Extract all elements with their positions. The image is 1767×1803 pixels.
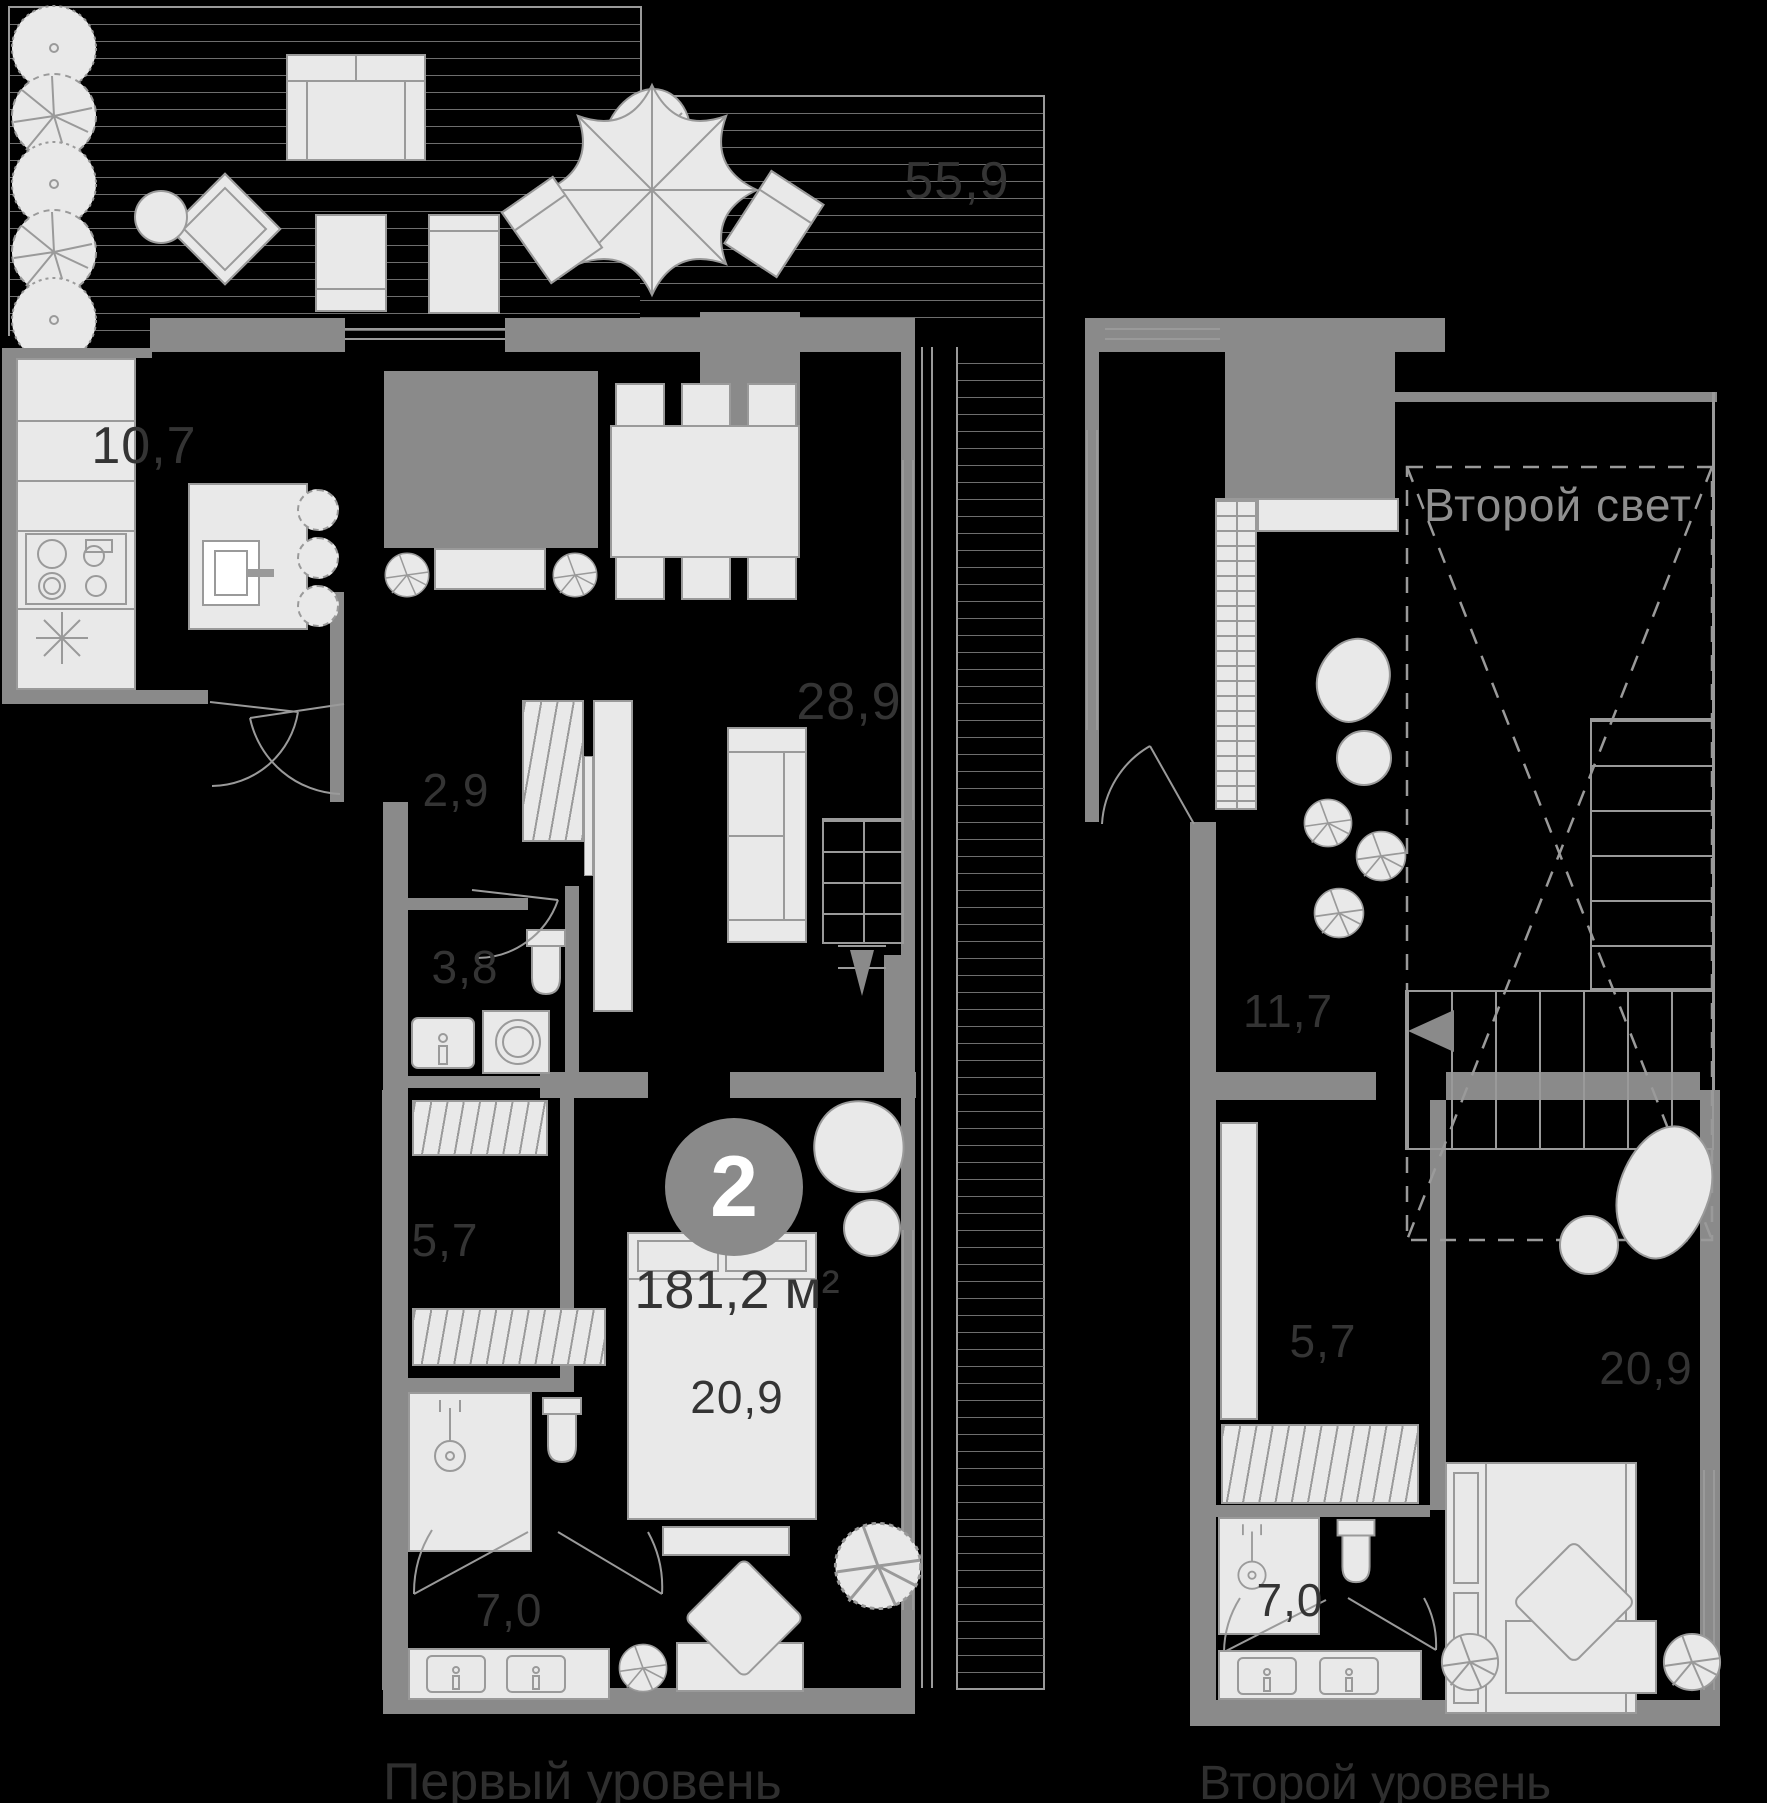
tv-screen [584, 756, 593, 876]
toilet-icon [1334, 1518, 1378, 1586]
dining-chair [615, 383, 665, 427]
wall [382, 1090, 408, 1690]
wall [150, 318, 345, 352]
outdoor-sofa [286, 54, 426, 161]
wardrobe-cabinet [1220, 1122, 1258, 1420]
unit-badge: 2 [665, 1118, 803, 1256]
area-bedroom: 20,9 [690, 1370, 784, 1424]
shower-head-icon [428, 1398, 472, 1474]
area-bedroom-2: 20,9 [1599, 1341, 1693, 1395]
pouf [843, 1199, 901, 1257]
pouf [1336, 730, 1392, 786]
sink-icon [425, 1654, 487, 1694]
door-arc [1340, 1588, 1440, 1654]
window [345, 328, 505, 340]
wall [540, 1072, 648, 1098]
area-bathroom: 7,0 [476, 1583, 543, 1637]
wall-column [1225, 352, 1395, 498]
area-hall-2: 11,7 [1243, 984, 1333, 1038]
dining-chair [615, 556, 665, 600]
dining-chair [681, 383, 731, 427]
beanbag-chair [1303, 626, 1404, 734]
wardrobe-rail [412, 1308, 606, 1366]
area-wardrobe: 5,7 [412, 1213, 479, 1267]
window [902, 460, 914, 820]
wall [2, 348, 16, 700]
balcony-border [956, 1688, 1045, 1690]
dining-chair [747, 556, 797, 600]
window-wall [921, 347, 933, 1688]
pouf-icon [1312, 886, 1366, 940]
pouf-icon [1354, 829, 1408, 883]
bar-table [434, 548, 546, 590]
toilet-icon [540, 1396, 584, 1466]
balcony-hatch [958, 347, 1044, 1688]
wall [1216, 1505, 1430, 1517]
sink-icon [505, 1654, 567, 1694]
sink-icon [1236, 1656, 1298, 1696]
stool-icon [383, 551, 431, 599]
wall [2, 348, 152, 358]
bar-stool [297, 489, 339, 531]
floor-plan: 2 181,2 м² 55,9 10,7 28,9 2,9 3,8 5,7 20… [0, 0, 1767, 1803]
level1-caption: Первый уровень [383, 1752, 782, 1803]
sofa [727, 727, 807, 943]
washing-machine-drum [492, 1016, 544, 1068]
outdoor-side-table [134, 190, 188, 244]
staircase [822, 818, 904, 944]
door-arc [548, 1520, 666, 1598]
kitchen-island [188, 483, 308, 630]
terrace-border [8, 6, 642, 8]
area-terrace: 55,9 [904, 151, 1009, 211]
area-kitchen: 10,7 [91, 416, 196, 476]
area-living: 28,9 [796, 672, 901, 732]
window [1086, 430, 1098, 730]
wall [383, 802, 408, 1090]
staircase-upper [1590, 718, 1714, 990]
wall [1326, 1072, 1376, 1100]
pouf-icon [1302, 797, 1354, 849]
total-area: 181,2 м² [634, 1259, 839, 1321]
stairs-down-arrow [836, 944, 888, 1002]
wall-column [384, 371, 598, 548]
wardrobe-rail [1221, 1424, 1419, 1504]
dining-chair [747, 383, 797, 427]
bar-stool [297, 585, 339, 627]
area-wardrobe-2: 5,7 [1290, 1314, 1357, 1368]
wall [408, 1378, 574, 1392]
pouf-icon [831, 1519, 925, 1613]
hall-wardrobe [522, 700, 584, 842]
dining-table [610, 425, 800, 558]
area-hallway: 2,9 [423, 763, 490, 817]
wall [884, 955, 915, 1080]
void-label: Второй свет [1424, 478, 1692, 532]
wall [2, 690, 208, 704]
wall [1190, 822, 1216, 1700]
door-arc [1098, 742, 1198, 828]
level2-caption: Второй уровень [1199, 1756, 1551, 1803]
wall [505, 318, 700, 352]
pouf-icon [1661, 1631, 1723, 1693]
rooms-count: 2 [710, 1138, 758, 1237]
window [1105, 328, 1220, 340]
wall [800, 318, 915, 352]
kitchen-sink-icon [32, 608, 92, 668]
tv-cabinet [593, 700, 633, 1012]
pouf-icon [1439, 1631, 1501, 1693]
outdoor-chair [428, 214, 500, 314]
bed-bench [662, 1526, 790, 1556]
area-bathroom-small: 3,8 [432, 940, 499, 994]
dining-chair [681, 556, 731, 600]
sink-icon [1318, 1656, 1380, 1696]
armchair [803, 1090, 915, 1203]
balcony-border [956, 347, 958, 1690]
entrance-door [240, 698, 348, 798]
pouf [1559, 1215, 1619, 1275]
wall [1395, 392, 1717, 402]
wardrobe-rail [412, 1100, 548, 1156]
console-shelf [1257, 498, 1399, 532]
stool-icon [551, 551, 599, 599]
stove-icon [24, 532, 128, 606]
bar-stool [297, 537, 339, 579]
outdoor-chair [315, 214, 387, 312]
pouf-icon [617, 1642, 669, 1694]
stairs-arrow [1406, 1006, 1456, 1056]
bookshelf [1215, 498, 1257, 810]
sink-icon [410, 1016, 476, 1070]
area-bathroom-2: 7,0 [1257, 1573, 1324, 1627]
wall [1216, 1072, 1326, 1100]
